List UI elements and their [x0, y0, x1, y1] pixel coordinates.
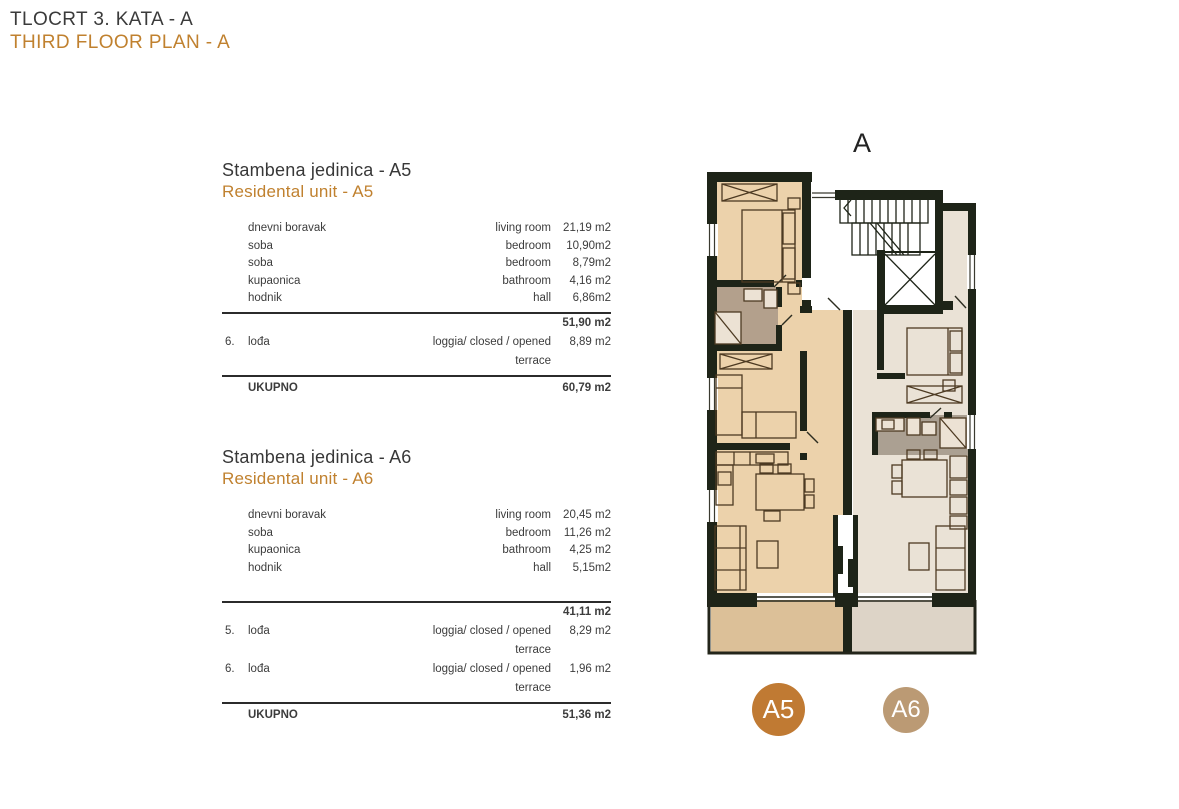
loggia-name-en: loggia/ closed / opened terrace	[398, 333, 551, 371]
room-area: 20,45 m2	[551, 507, 611, 525]
room-name-en: bedroom	[398, 525, 551, 543]
unit-a6-title-hr: Stambena jedinica - A6	[222, 447, 611, 468]
total-value: 51,36 m2	[551, 704, 611, 726]
room-name-hr: soba	[248, 238, 398, 256]
unit-badge-a6: A6	[883, 687, 929, 733]
a6-floor	[853, 208, 968, 593]
room-name-hr: hodnik	[248, 290, 398, 308]
loggia-number: 6.	[222, 333, 248, 371]
page-title-hr: TLOCRT 3. KATA - A	[10, 8, 230, 31]
room-area: 21,19 m2	[551, 220, 611, 238]
block-label: A	[846, 128, 878, 159]
unit-a5-table: dnevni boravakliving room21,19 m2 sobabe…	[222, 220, 611, 399]
room-name-en: living room	[398, 220, 551, 238]
loggia-name-en: loggia/ closed / opened terrace	[398, 622, 551, 660]
table-row: kupaonicabathroom4,25 m2	[222, 542, 611, 560]
table-row: kupaonicabathroom4,16 m2	[222, 273, 611, 291]
room-area: 4,16 m2	[551, 273, 611, 291]
subtotal-value: 41,11 m2	[551, 603, 611, 622]
total-label: UKUPNO	[248, 377, 398, 399]
subtotal-row: 51,90 m2	[222, 314, 611, 333]
unit-badge-a5: A5	[752, 683, 805, 736]
room-name-hr: kupaonica	[248, 542, 398, 560]
total-row: UKUPNO60,79 m2	[222, 377, 611, 399]
a5-floor	[712, 174, 843, 593]
loggia-number: 5.	[222, 622, 248, 660]
room-name-hr: kupaonica	[248, 273, 398, 291]
table-row: sobabedroom8,79m2	[222, 255, 611, 273]
table-row: sobabedroom10,90m2	[222, 238, 611, 256]
floor-plan-page: TLOCRT 3. KATA - A THIRD FLOOR PLAN - A …	[0, 0, 1179, 809]
a6-loggia-floor	[852, 600, 974, 652]
unit-a6-section: Stambena jedinica - A6 Residental unit -…	[222, 447, 611, 726]
loggia-area: 1,96 m2	[551, 660, 611, 698]
room-name-en: hall	[398, 560, 551, 578]
total-label: UKUPNO	[248, 704, 398, 726]
room-name-hr: hodnik	[248, 560, 398, 578]
loggia-name-hr: lođa	[248, 622, 398, 660]
unit-a5-title-hr: Stambena jedinica - A5	[222, 160, 611, 181]
room-name-hr: soba	[248, 525, 398, 543]
loggia-row: 6.lođaloggia/ closed / opened terrace1,9…	[222, 660, 611, 698]
room-name-hr: dnevni boravak	[248, 507, 398, 525]
page-title-en: THIRD FLOOR PLAN - A	[10, 31, 230, 54]
page-header: TLOCRT 3. KATA - A THIRD FLOOR PLAN - A	[10, 8, 230, 54]
table-row: hodnikhall5,15m2	[222, 560, 611, 578]
loggia-row: 5.lođaloggia/ closed / opened terrace8,2…	[222, 622, 611, 660]
loggia-area: 8,29 m2	[551, 622, 611, 660]
room-area: 5,15m2	[551, 560, 611, 578]
loggia-number: 6.	[222, 660, 248, 698]
room-name-en: bathroom	[398, 542, 551, 560]
room-area: 4,25 m2	[551, 542, 611, 560]
room-name-en: bathroom	[398, 273, 551, 291]
room-name-hr: dnevni boravak	[248, 220, 398, 238]
loggia-name-en: loggia/ closed / opened terrace	[398, 660, 551, 698]
subtotal-value: 51,90 m2	[551, 314, 611, 333]
table-row: dnevni boravakliving room21,19 m2	[222, 220, 611, 238]
unit-a5-title-en: Residental unit - A5	[222, 181, 611, 202]
room-area: 8,79m2	[551, 255, 611, 273]
table-row: sobabedroom11,26 m2	[222, 525, 611, 543]
badge-label: A5	[763, 694, 795, 725]
room-name-en: bedroom	[398, 255, 551, 273]
table-row: dnevni boravakliving room20,45 m2	[222, 507, 611, 525]
total-row: UKUPNO51,36 m2	[222, 704, 611, 726]
unit-a5-section: Stambena jedinica - A5 Residental unit -…	[222, 160, 611, 399]
loggia-area: 8,89 m2	[551, 333, 611, 371]
room-name-en: living room	[398, 507, 551, 525]
unit-a6-title-en: Residental unit - A6	[222, 468, 611, 489]
floor-plan-svg	[700, 160, 990, 670]
room-area: 11,26 m2	[551, 525, 611, 543]
room-area: 6,86m2	[551, 290, 611, 308]
elevator	[885, 252, 935, 305]
a5-loggia-floor	[711, 600, 843, 652]
room-name-en: bedroom	[398, 238, 551, 256]
subtotal-row: 41,11 m2	[222, 603, 611, 622]
room-name-en: hall	[398, 290, 551, 308]
total-value: 60,79 m2	[551, 377, 611, 399]
room-name-hr: soba	[248, 255, 398, 273]
stairs	[840, 193, 928, 255]
room-area: 10,90m2	[551, 238, 611, 256]
table-row: hodnikhall6,86m2	[222, 290, 611, 308]
badge-label: A6	[891, 696, 920, 724]
loggia-name-hr: lođa	[248, 333, 398, 371]
loggia-row: 6.lođaloggia/ closed / opened terrace8,8…	[222, 333, 611, 371]
unit-a6-table: dnevni boravakliving room20,45 m2 sobabe…	[222, 507, 611, 726]
loggia-name-hr: lođa	[248, 660, 398, 698]
